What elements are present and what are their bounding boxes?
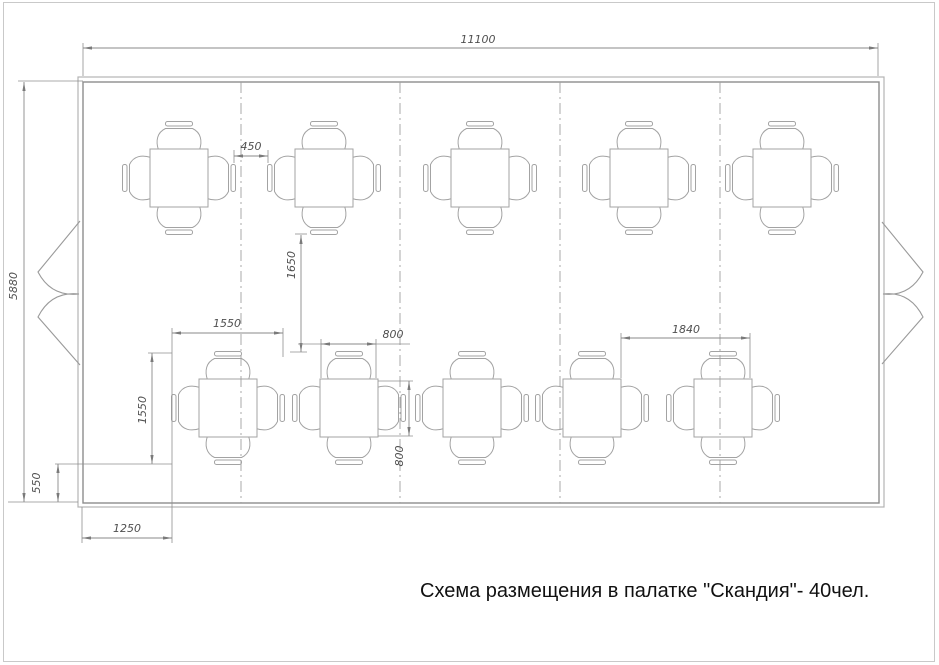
chair-seat [617,129,661,151]
chair-seat [733,156,755,200]
chair-seat [450,436,494,458]
chair-seat [760,206,804,228]
chair-backrest [644,395,649,422]
left-door [38,221,80,365]
chair-seat [157,129,201,151]
chair-seat [570,359,614,381]
dimension-arrow [274,331,283,334]
chair-seat [701,359,745,381]
dimension-arrow [299,235,302,244]
chair-backrest [532,165,537,192]
chair-seat [302,129,346,151]
chair [726,156,755,200]
chair [450,352,494,381]
chair [293,386,322,430]
table-with-chairs-2 [268,122,381,235]
chair [667,386,696,430]
dimension-arrow [407,381,410,390]
dimension-label: 1650 [285,251,298,279]
chair-backrest [536,395,541,422]
dimension-arrow [150,353,153,362]
chair [157,206,201,235]
door-flap [38,221,80,294]
chair-seat [327,359,371,381]
dimension-label: 11100 [461,33,496,46]
chair-backrest [459,460,486,465]
dimension-550-10: 550 [30,464,172,502]
chair [450,436,494,465]
chair-seat [327,436,371,458]
chair-backrest [626,122,653,127]
dimension-1550-5: 1550 [136,353,172,464]
chair [667,156,696,200]
chair-backrest [280,395,285,422]
chair [207,156,236,200]
chair-seat [207,156,229,200]
dimension-arrow [56,464,59,473]
dimension-arrow [82,536,91,539]
dimension-arrow [321,342,330,345]
chair [617,206,661,235]
chair-seat [302,206,346,228]
dimension-arrow [163,536,172,539]
chair-backrest [691,165,696,192]
chair-seat [674,386,696,430]
dimension-arrow [22,493,25,502]
door-flap [882,294,923,364]
chair [500,386,529,430]
chair-backrest [231,165,236,192]
chair-seat [570,436,614,458]
chair-backrest [311,230,338,235]
table-with-chairs-9 [536,352,649,465]
chair-backrest [376,165,381,192]
dimension-arrow [22,82,25,91]
chair [458,206,502,235]
chair [157,122,201,151]
chair [620,386,649,430]
chair-backrest [467,230,494,235]
dimension-arrow [234,154,243,157]
dimension-label: 800 [393,446,406,467]
chair-seat [130,156,152,200]
chair-backrest [268,165,273,192]
chair [123,156,152,200]
table-with-chairs-4 [583,122,696,235]
chair [701,352,745,381]
table-with-chairs-3 [424,122,537,235]
table-with-chairs-7 [293,352,406,465]
dimension-arrow [367,342,376,345]
dimension-label: 1840 [672,323,700,336]
dimension-arrow [407,427,410,436]
chair [172,386,201,430]
chair-backrest [775,395,780,422]
chair-backrest [336,352,363,357]
chair-seat [701,436,745,458]
chair-seat [590,156,612,200]
page-border [4,3,935,662]
dimension-label: 800 [383,328,404,341]
floor-plan-page: 1110058804501650155015508008001840125055… [0,0,939,665]
chair-seat [450,359,494,381]
dimension-label: 1550 [213,317,241,330]
chair [206,352,250,381]
door-flap [38,294,80,365]
chair-backrest [424,165,429,192]
chair-backrest [467,122,494,127]
table-top [610,149,668,207]
table-top [199,379,257,437]
dimension-arrow [150,455,153,464]
chair-seat [256,386,278,430]
dimension-arrow [621,336,630,339]
chair-seat [206,359,250,381]
chair-backrest [123,165,128,192]
chair-backrest [579,352,606,357]
chair-backrest [726,165,731,192]
dimension-arrow [83,46,92,49]
chair-backrest [336,460,363,465]
chair-backrest [215,352,242,357]
chair-seat [751,386,773,430]
chair [458,122,502,151]
chair [570,436,614,465]
chair [424,156,453,200]
chair-seat [810,156,832,200]
chair-seat [760,129,804,151]
chair-backrest [166,122,193,127]
chair-seat [543,386,565,430]
drawing-title: Схема размещения в палатке "Скандия"- 40… [420,580,869,603]
table-with-chairs-5 [726,122,839,235]
chair [760,122,804,151]
dimension-label: 450 [241,140,262,153]
dimension-label: 5880 [7,272,20,300]
chair-seat [377,386,399,430]
chair [302,206,346,235]
dimension-arrow [56,493,59,502]
chair-backrest [583,165,588,192]
chair-backrest [710,460,737,465]
chair-seat [458,129,502,151]
chair-backrest [311,122,338,127]
dimension-label: 1550 [136,396,149,424]
chair [206,436,250,465]
chair [570,352,614,381]
dimension-label: 550 [30,473,43,494]
chair-backrest [293,395,298,422]
chair-backrest [667,395,672,422]
chair [751,386,780,430]
dimension-450-2: 450 [234,140,268,163]
table-with-chairs-6 [172,352,285,465]
chair [508,156,537,200]
dimension-11100-0: 11100 [83,33,878,76]
chair [352,156,381,200]
dimension-5880-1: 5880 [7,81,83,502]
chair-backrest [401,395,406,422]
chair-seat [157,206,201,228]
chair [256,386,285,430]
floor-plan-svg: 1110058804501650155015508008001840125055… [0,0,939,665]
chair-seat [431,156,453,200]
chair-backrest [834,165,839,192]
table-top [694,379,752,437]
chair-seat [352,156,374,200]
table-with-chairs-1 [123,122,236,235]
chair [302,122,346,151]
chair-seat [423,386,445,430]
table-top [295,149,353,207]
table-top [563,379,621,437]
chair-backrest [524,395,529,422]
dimension-label: 1250 [113,522,141,535]
chair [701,436,745,465]
chair [268,156,297,200]
chair-backrest [769,230,796,235]
chair [617,122,661,151]
chair-seat [458,206,502,228]
chair [583,156,612,200]
chair [416,386,445,430]
chair-seat [617,206,661,228]
chair-seat [179,386,201,430]
chair [327,352,371,381]
chair [327,436,371,465]
chair [760,206,804,235]
chair-seat [667,156,689,200]
chair-seat [620,386,642,430]
dimension-1250-9: 1250 [82,507,172,543]
chair [810,156,839,200]
chair-backrest [166,230,193,235]
dimension-arrow [172,331,181,334]
chair-backrest [459,352,486,357]
table-top [150,149,208,207]
table-top [451,149,509,207]
chair-backrest [710,352,737,357]
chair-seat [508,156,530,200]
table-top [443,379,501,437]
chair-seat [275,156,297,200]
door-flap [882,222,923,294]
chair [377,386,406,430]
dimension-1650-3: 1650 [285,234,307,352]
table-with-chairs-10 [667,352,780,465]
chair-seat [500,386,522,430]
chair-seat [300,386,322,430]
table-top [320,379,378,437]
chair-backrest [626,230,653,235]
chair-backrest [769,122,796,127]
chair-backrest [416,395,421,422]
chair-backrest [215,460,242,465]
right-door [882,222,923,364]
dimension-arrow [869,46,878,49]
table-with-chairs-8 [416,352,529,465]
dimension-arrow [259,154,268,157]
dimension-arrow [741,336,750,339]
chair-backrest [579,460,606,465]
chair-seat [206,436,250,458]
table-top [753,149,811,207]
